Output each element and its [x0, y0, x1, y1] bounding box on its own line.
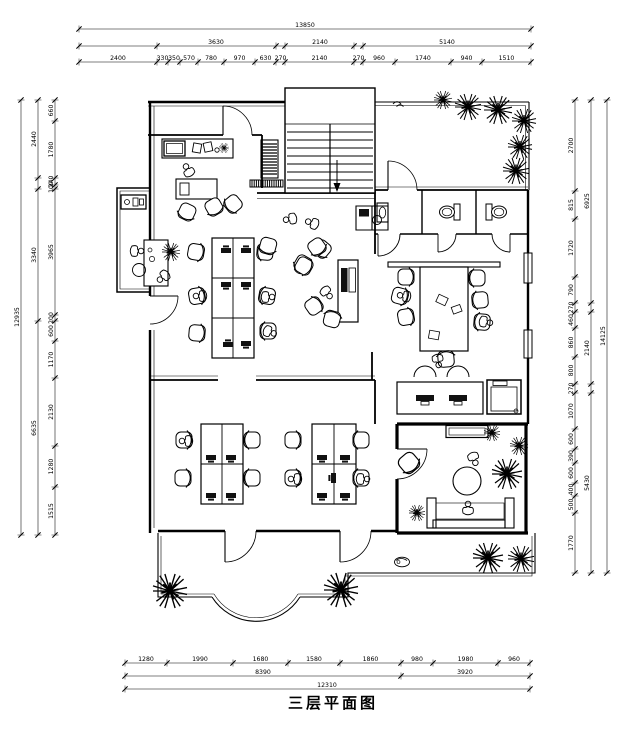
svg-text:2140: 2140: [584, 340, 591, 356]
person: [319, 284, 336, 301]
svg-text:1680: 1680: [253, 656, 269, 663]
person: [282, 213, 297, 226]
rock-glyph-detail: [396, 559, 407, 561]
svg-text:5140: 5140: [439, 39, 455, 46]
plant: [409, 505, 425, 521]
dimension-chain-bottom: 1280199016801580186098019809608390392012…: [122, 656, 532, 693]
workstation-cluster-a: [186, 238, 278, 358]
chair: [221, 192, 245, 217]
plant: [512, 109, 536, 133]
svg-text:3920: 3920: [457, 669, 473, 676]
top-left-office: [121, 139, 245, 223]
svg-text:1070: 1070: [568, 403, 575, 419]
svg-text:630: 630: [260, 55, 272, 62]
svg-text:570: 570: [183, 55, 195, 62]
svg-text:970: 970: [234, 55, 246, 62]
svg-text:6635: 6635: [31, 420, 38, 436]
chair: [292, 254, 315, 278]
svg-text:330: 330: [157, 55, 169, 62]
reception-desk: [176, 179, 217, 199]
svg-text:100: 100: [48, 181, 55, 193]
toilet: [440, 204, 461, 220]
svg-text:980: 980: [411, 656, 423, 663]
wc-area: [375, 187, 528, 256]
svg-text:940: 940: [461, 55, 473, 62]
cabinet-item: [133, 198, 138, 206]
sofa-arm: [427, 498, 436, 528]
svg-text:1510: 1510: [499, 55, 515, 62]
cabinet-item: [125, 200, 130, 205]
shelf-vertical-slats: [262, 144, 277, 174]
svg-text:1280: 1280: [48, 459, 55, 475]
chair: [244, 431, 260, 450]
chair: [302, 294, 326, 319]
svg-text:1770: 1770: [568, 535, 575, 551]
svg-text:1720: 1720: [568, 240, 575, 256]
svg-text:1990: 1990: [192, 656, 208, 663]
svg-text:14125: 14125: [600, 326, 607, 346]
svg-text:600: 600: [568, 433, 575, 445]
person: [467, 451, 482, 467]
svg-text:2440: 2440: [31, 131, 38, 147]
chair: [436, 350, 456, 368]
plant: [508, 546, 534, 572]
svg-text:270: 270: [568, 383, 575, 395]
lounge-cabinet: [446, 426, 488, 438]
chair: [414, 366, 469, 377]
utility-appliance: [359, 209, 369, 217]
svg-text:270: 270: [353, 55, 365, 62]
svg-text:2140: 2140: [312, 55, 328, 62]
workstation-cluster-c: [285, 424, 370, 504]
chair: [390, 285, 410, 307]
chair: [353, 431, 369, 450]
svg-text:780: 780: [205, 55, 217, 62]
svg-text:5430: 5430: [584, 475, 591, 491]
balcony-edge: [158, 533, 535, 621]
svg-text:2400: 2400: [110, 55, 126, 62]
chair: [244, 469, 260, 488]
conference-table: [420, 267, 468, 351]
svg-text:270: 270: [568, 302, 575, 314]
svg-text:270: 270: [275, 55, 287, 62]
chair: [186, 241, 205, 262]
svg-text:800: 800: [568, 365, 575, 377]
chair: [175, 201, 199, 224]
svg-text:2130: 2130: [48, 404, 55, 420]
svg-text:12310: 12310: [317, 682, 337, 689]
computer: [341, 268, 348, 292]
plant: [484, 425, 500, 441]
svg-text:860: 860: [568, 337, 575, 349]
balcony-edge-inner: [161, 536, 532, 618]
svg-text:8390: 8390: [255, 669, 271, 676]
sofa-arm: [505, 498, 514, 528]
toilet: [486, 204, 507, 220]
center-desk: [292, 235, 358, 329]
plant: [324, 573, 358, 607]
plant: [503, 158, 529, 184]
chair: [257, 285, 276, 306]
dimension-chain-top: 1385036302140514024003303505707809706302…: [76, 22, 533, 66]
dimension-chain-right: 2700815172079027046086080027010706003906…: [568, 97, 611, 575]
svg-text:1515: 1515: [48, 503, 55, 519]
person: [304, 216, 320, 231]
svg-text:790: 790: [568, 284, 575, 296]
chair: [188, 323, 206, 343]
svg-text:1860: 1860: [363, 656, 379, 663]
svg-text:660: 660: [48, 105, 55, 117]
computer-desk-room: [397, 366, 521, 414]
svg-text:1980: 1980: [458, 656, 474, 663]
computer-desk: [397, 382, 483, 414]
person: [180, 161, 196, 178]
chair: [469, 269, 485, 288]
svg-text:390: 390: [568, 450, 575, 462]
plant: [434, 91, 452, 109]
chair: [471, 290, 489, 310]
chair: [398, 268, 414, 287]
chair: [175, 469, 191, 488]
workstation-cluster-b: [175, 424, 260, 504]
lounge: [395, 426, 514, 529]
dimension-chain-left: 6601780240100396520060011702130128015152…: [14, 97, 59, 537]
floor-plan-drawing: 1385036302140514024003303505707809706302…: [0, 0, 630, 750]
svg-text:600: 600: [48, 325, 55, 337]
plant: [508, 135, 532, 159]
svg-text:400: 400: [568, 484, 575, 496]
plant: [473, 543, 503, 573]
svg-text:500: 500: [568, 499, 575, 511]
chair: [285, 431, 301, 450]
cabinet-item: [140, 199, 144, 205]
drawing-title: 三层平面图: [288, 694, 378, 712]
svg-text:3340: 3340: [31, 247, 38, 263]
shelf-horizontal-slats: [252, 180, 281, 187]
staircase: [250, 88, 375, 193]
svg-text:12935: 12935: [14, 307, 21, 327]
svg-text:6925: 6925: [584, 193, 591, 209]
rock-glyph-eye: [397, 561, 400, 564]
svg-text:200: 200: [48, 312, 55, 324]
chair: [187, 285, 206, 306]
sofa-back: [433, 520, 505, 528]
svg-text:960: 960: [373, 55, 385, 62]
plant: [492, 459, 522, 489]
chair: [396, 306, 415, 327]
svg-text:350: 350: [168, 55, 180, 62]
svg-text:2700: 2700: [568, 138, 575, 154]
svg-text:2140: 2140: [312, 39, 328, 46]
svg-text:3630: 3630: [208, 39, 224, 46]
svg-text:1740: 1740: [415, 55, 431, 62]
chair: [473, 312, 491, 332]
svg-text:13850: 13850: [295, 22, 315, 29]
urinal-bowl: [379, 207, 385, 218]
left-desk-group: [130, 240, 180, 286]
svg-text:600: 600: [568, 467, 575, 479]
armchair: [395, 449, 424, 477]
floor-plan-page: 1385036302140514024003303505707809706302…: [0, 0, 630, 750]
svg-text:1280: 1280: [138, 656, 154, 663]
svg-text:3965: 3965: [48, 244, 55, 260]
svg-text:960: 960: [508, 656, 520, 663]
svg-text:1580: 1580: [306, 656, 322, 663]
sideboard: [388, 262, 500, 267]
terrace-parapet: [375, 102, 529, 190]
plant: [455, 94, 481, 120]
furniture: [121, 139, 521, 528]
lounge-cabinet-inner: [449, 428, 485, 435]
svg-text:1780: 1780: [48, 142, 55, 158]
round-table: [453, 467, 481, 495]
person: [130, 246, 144, 257]
svg-text:460: 460: [568, 314, 575, 326]
svg-text:815: 815: [568, 199, 575, 211]
plant: [484, 96, 512, 124]
svg-text:1170: 1170: [48, 352, 55, 368]
meeting-room: [388, 262, 500, 369]
wc-doors: [378, 234, 510, 256]
